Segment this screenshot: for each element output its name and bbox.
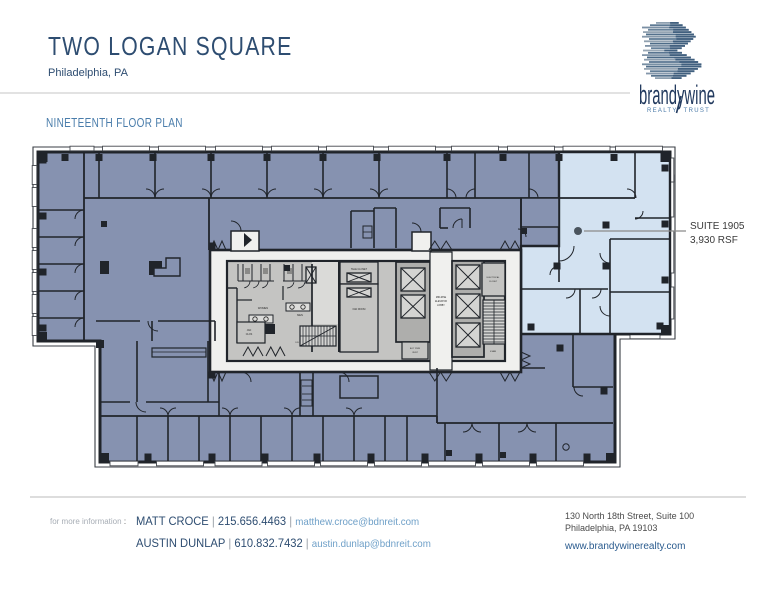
svg-text:CLOS: CLOS bbox=[246, 333, 253, 336]
svg-text:MEN: MEN bbox=[297, 313, 303, 317]
svg-text:BOT PWR: BOT PWR bbox=[410, 348, 421, 350]
svg-text:TELE CLOSET: TELE CLOSET bbox=[351, 268, 368, 271]
svg-text:LOBBY: LOBBY bbox=[437, 305, 445, 307]
svg-text:DN: DN bbox=[295, 342, 299, 344]
svg-text:FAN ROOM: FAN ROOM bbox=[353, 308, 366, 311]
svg-text:JAN: JAN bbox=[247, 329, 252, 332]
svg-text:CLOSET: CLOSET bbox=[489, 281, 498, 283]
svg-text:ELEVATOR: ELEVATOR bbox=[435, 300, 447, 303]
svg-text:MID-RISE: MID-RISE bbox=[436, 297, 447, 299]
svg-text:VENT: VENT bbox=[412, 352, 418, 354]
svg-text:STAIR: STAIR bbox=[490, 350, 497, 353]
svg-text:WOMEN: WOMEN bbox=[258, 306, 268, 310]
svg-text:ELECTRICAL: ELECTRICAL bbox=[487, 276, 501, 279]
